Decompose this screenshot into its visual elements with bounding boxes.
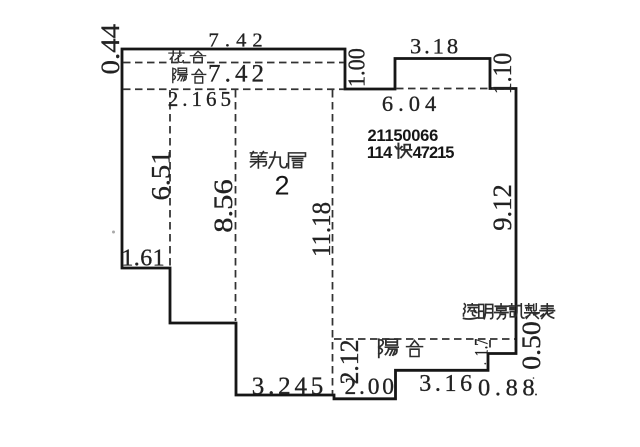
svg-text:1.7: 1.7 [472,339,493,357]
svg-text:21150066: 21150066 [368,127,439,145]
svg-text:8.56: 8.56 [209,179,238,233]
svg-text:7.42: 7.42 [209,30,269,52]
svg-text:0.88: 0.88 [478,375,539,402]
svg-text:3.16: 3.16 [419,371,475,397]
svg-text:3.245: 3.245 [252,373,327,400]
svg-text:47215: 47215 [413,144,455,162]
svg-text:0.50: 0.50 [517,321,546,370]
svg-text:2.165: 2.165 [168,87,235,111]
svg-text:11.18: 11.18 [307,202,336,257]
svg-text:1.10: 1.10 [488,53,517,95]
svg-text:9.12: 9.12 [488,184,517,231]
svg-text:1.61: 1.61 [121,246,165,272]
svg-text:6.04: 6.04 [382,91,441,116]
svg-text:6.51: 6.51 [147,151,176,201]
svg-text:7.42: 7.42 [208,61,268,88]
svg-text:2.12: 2.12 [335,340,364,385]
svg-text:114: 114 [367,144,393,162]
svg-text:1.00: 1.00 [345,48,371,87]
svg-text:3.18: 3.18 [410,33,461,58]
svg-text:2: 2 [275,171,290,201]
svg-text:0.44: 0.44 [96,24,125,74]
